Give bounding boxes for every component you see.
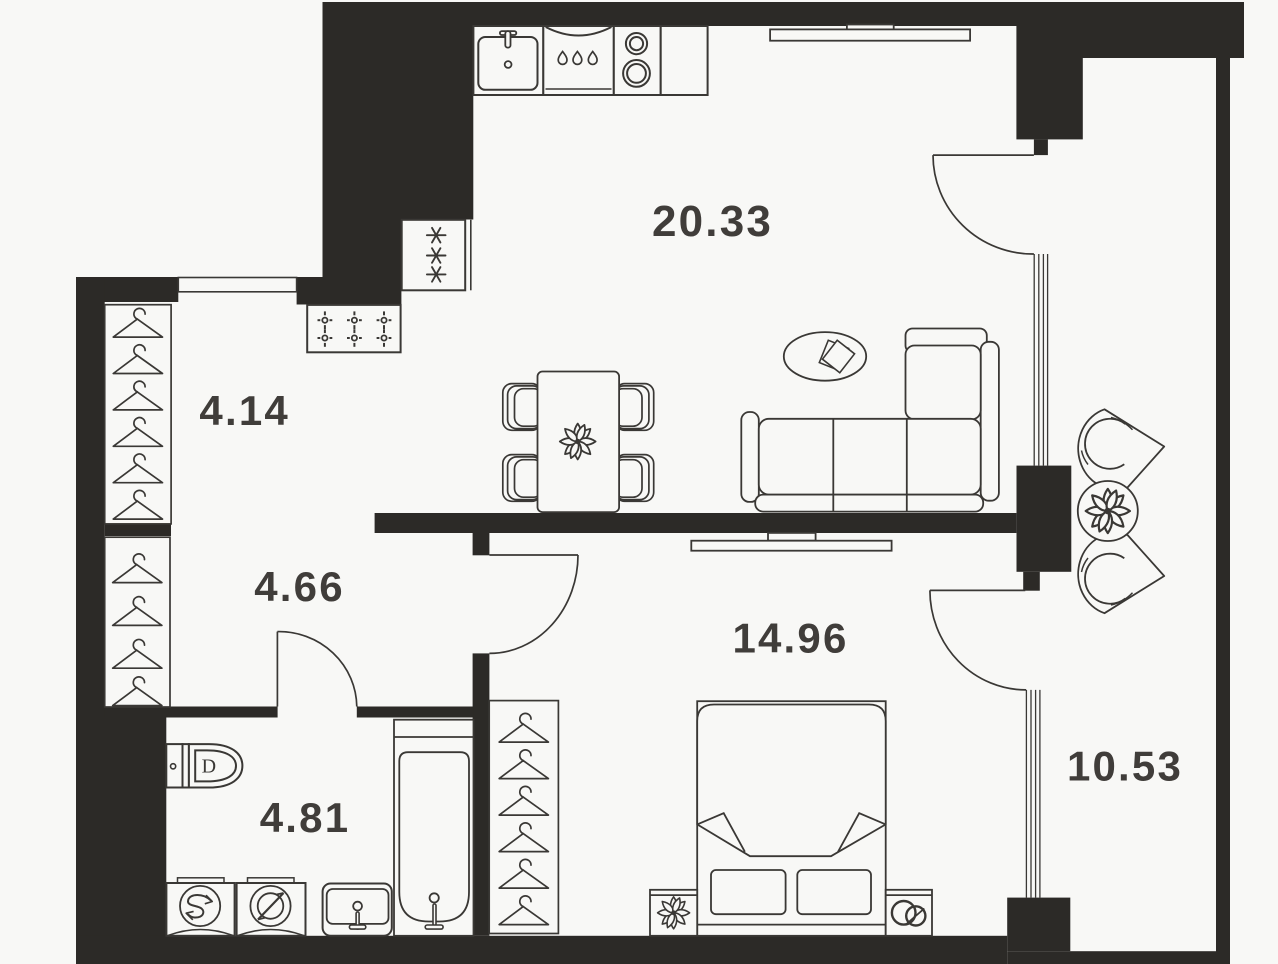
- svg-text:14.96: 14.96: [732, 615, 848, 662]
- svg-text:10.53: 10.53: [1067, 743, 1183, 790]
- svg-text:4.14: 4.14: [199, 387, 290, 434]
- svg-text:4.81: 4.81: [260, 794, 351, 841]
- svg-text:4.66: 4.66: [254, 563, 345, 610]
- svg-text:20.33: 20.33: [652, 197, 773, 246]
- svg-text:D: D: [202, 756, 216, 778]
